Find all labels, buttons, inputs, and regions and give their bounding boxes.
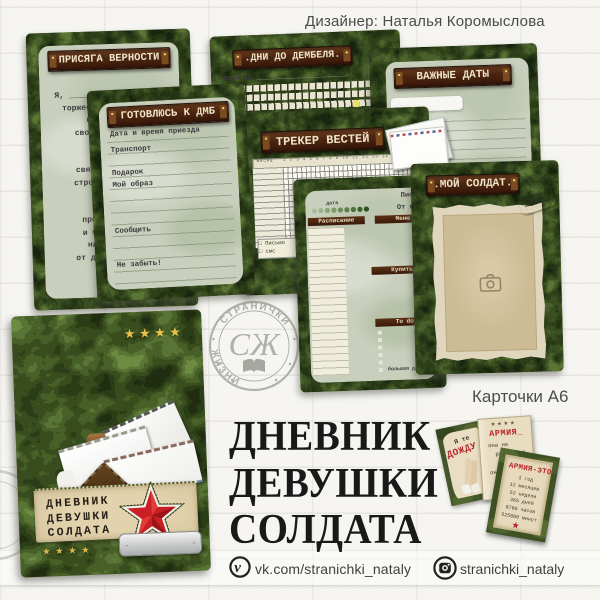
svg-text:СЖ: СЖ — [229, 326, 281, 362]
svg-text:СТРАНИЧКИ: СТРАНИЧКИ — [218, 301, 292, 328]
svg-text:v: v — [234, 560, 241, 576]
